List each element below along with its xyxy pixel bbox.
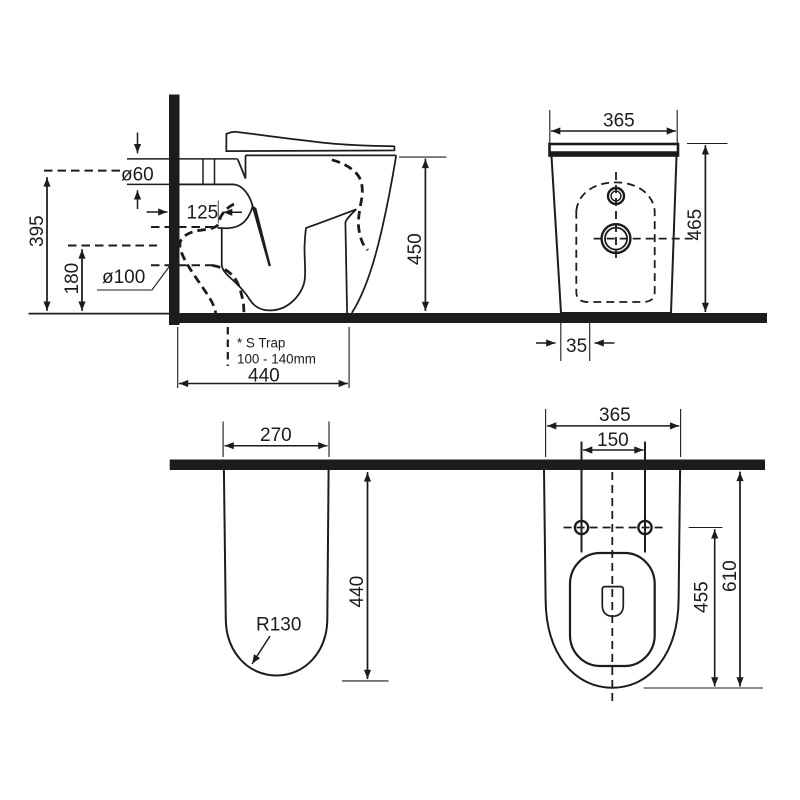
svg-text:365: 365 bbox=[599, 405, 631, 426]
svg-text:395: 395 bbox=[27, 215, 48, 247]
svg-text:ø60: ø60 bbox=[121, 165, 154, 186]
svg-text:35: 35 bbox=[566, 336, 587, 357]
svg-text:270: 270 bbox=[260, 425, 292, 446]
svg-text:100 - 140mm: 100 - 140mm bbox=[237, 352, 316, 367]
svg-text:R130: R130 bbox=[256, 615, 301, 636]
svg-text:450: 450 bbox=[405, 233, 426, 265]
svg-text:* S Trap: * S Trap bbox=[237, 335, 285, 350]
svg-text:365: 365 bbox=[603, 111, 635, 132]
svg-text:150: 150 bbox=[597, 430, 629, 451]
svg-text:440: 440 bbox=[248, 366, 280, 387]
svg-text:440: 440 bbox=[347, 576, 368, 608]
svg-text:465: 465 bbox=[685, 209, 706, 241]
svg-text:455: 455 bbox=[692, 581, 713, 613]
svg-text:180: 180 bbox=[62, 263, 83, 295]
svg-text:125: 125 bbox=[187, 203, 219, 224]
svg-text:610: 610 bbox=[720, 560, 741, 592]
svg-text:ø100: ø100 bbox=[102, 267, 145, 288]
